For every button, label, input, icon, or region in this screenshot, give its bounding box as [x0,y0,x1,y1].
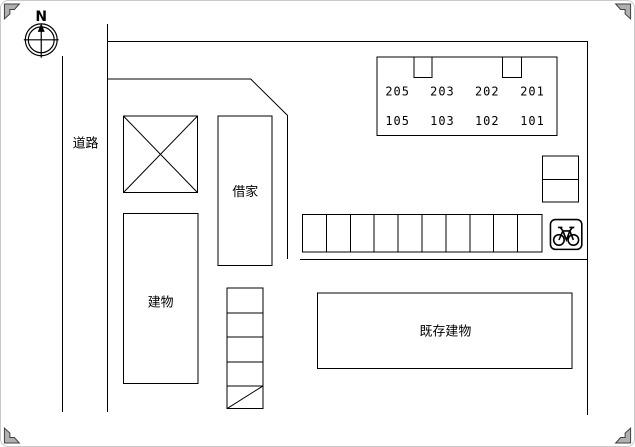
rental-house-label: 借家 [232,184,258,200]
room-number: 202 [475,85,500,99]
crossed-utility-box [123,116,197,193]
existing-building-label: 既存建物 [420,324,472,339]
stairs-strip [227,288,263,408]
room-number: 105 [385,114,410,128]
room-number: 205 [385,85,410,99]
crop-marks [4,4,630,443]
compass-north-label: N [35,9,47,25]
inner-boundary-chamfer [251,79,288,115]
apartment-block: 205 203 202 201 105 103 102 101 [377,57,557,135]
bicycle-frame [559,231,573,240]
apartment-entry-notch-1 [414,57,432,77]
crop-mark-bottom-left [4,428,19,443]
road-label: 道路 [73,135,99,151]
stairs-diagonal [227,386,263,409]
crop-mark-top-right [616,4,631,19]
crop-mark-bottom-right [616,428,631,443]
storage-box-outline [542,156,578,202]
bicycle-handlebar [569,227,574,230]
bicycle-parking-box [550,220,581,250]
room-number: 101 [520,114,545,128]
parking-row [303,215,542,252]
apartment-entry-notch-2 [503,57,522,77]
bicycle-seat [558,227,563,230]
site-plan-drawing: N 205 203 202 201 105 103 102 [1,1,634,446]
bicycle-icon [554,227,579,245]
room-number: 201 [520,85,545,99]
storage-box [542,156,578,202]
building-label: 建物 [148,296,174,311]
compass-icon [24,23,59,57]
room-number: 102 [475,114,500,128]
crop-mark-top-left [4,4,19,19]
room-number: 103 [430,114,455,128]
room-number: 203 [430,85,455,99]
site-plan-page: N 205 203 202 201 105 103 102 [0,0,635,447]
stairs-outline [227,288,263,408]
bicycle-box-outline [550,220,581,250]
